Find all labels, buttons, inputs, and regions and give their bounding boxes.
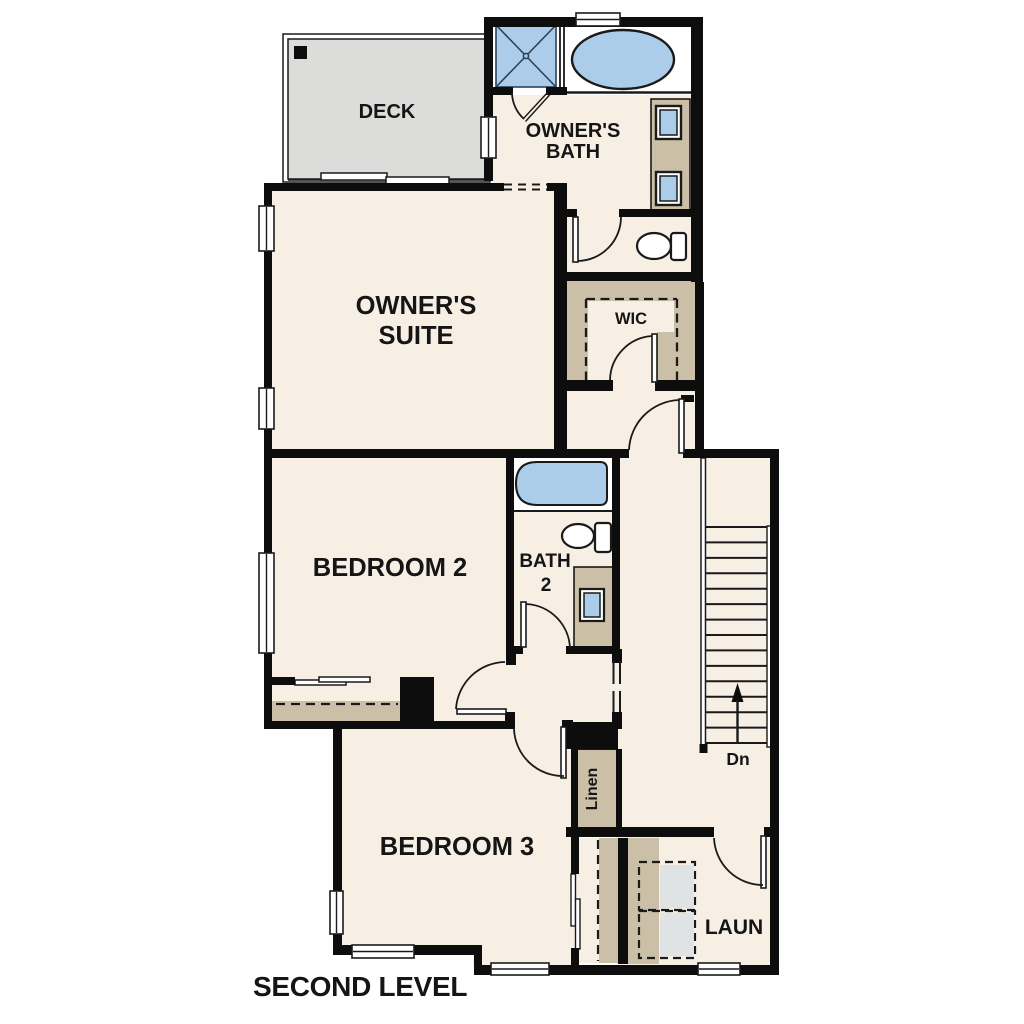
- svg-text:WIC: WIC: [615, 310, 647, 328]
- svg-text:SUITE: SUITE: [378, 322, 453, 350]
- svg-text:BEDROOM 2: BEDROOM 2: [313, 554, 467, 582]
- svg-text:OWNER'S: OWNER'S: [526, 120, 621, 142]
- svg-text:SECOND LEVEL: SECOND LEVEL: [253, 971, 467, 1002]
- svg-text:LAUN: LAUN: [705, 916, 763, 939]
- svg-text:DECK: DECK: [359, 101, 416, 123]
- svg-text:BATH: BATH: [519, 551, 570, 572]
- svg-text:Dn: Dn: [726, 749, 749, 769]
- svg-text:BEDROOM 3: BEDROOM 3: [380, 833, 534, 861]
- svg-text:Linen: Linen: [584, 768, 601, 811]
- svg-text:2: 2: [541, 575, 552, 596]
- svg-text:BATH: BATH: [546, 141, 600, 163]
- svg-text:OWNER'S: OWNER'S: [356, 292, 477, 320]
